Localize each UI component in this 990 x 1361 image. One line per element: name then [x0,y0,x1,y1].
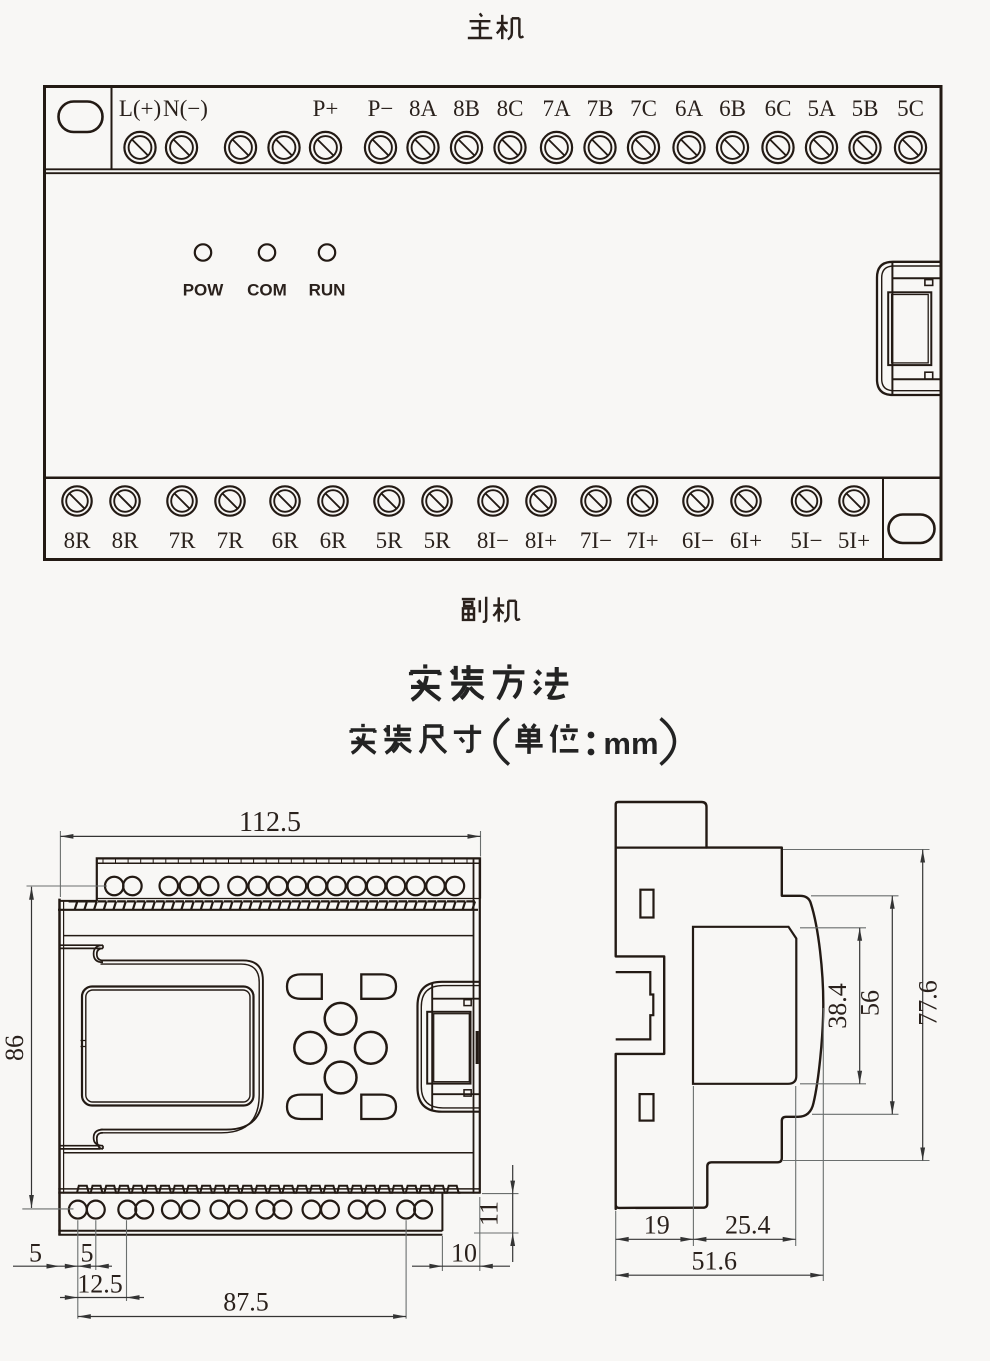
svg-text:86: 86 [0,1035,29,1061]
svg-text:19: 19 [644,1211,670,1240]
svg-text:P−: P− [368,96,394,121]
svg-text:11: 11 [475,1201,504,1226]
svg-text:5: 5 [81,1239,94,1268]
svg-text:L(+): L(+) [119,96,161,121]
svg-text:6C: 6C [765,96,792,121]
svg-text:8A: 8A [409,96,438,121]
svg-text:77.6: 77.6 [914,980,943,1026]
svg-text:7I−: 7I− [580,528,612,553]
svg-text:6A: 6A [675,96,704,121]
svg-text:8R: 8R [64,528,92,553]
svg-text:5C: 5C [897,96,924,121]
svg-text:5R: 5R [376,528,404,553]
svg-text:6I−: 6I− [682,528,714,553]
svg-text:RUN: RUN [309,281,346,300]
svg-text:51.6: 51.6 [691,1247,737,1276]
svg-text:7I+: 7I+ [626,528,658,553]
svg-text:5A: 5A [807,96,836,121]
svg-text:COM: COM [247,281,287,300]
svg-text:6R: 6R [320,528,348,553]
svg-text:7A: 7A [542,96,571,121]
svg-text:POW: POW [183,281,225,300]
svg-text:5I−: 5I− [790,528,822,553]
svg-text:5: 5 [29,1239,42,1268]
svg-text:87.5: 87.5 [223,1288,269,1317]
svg-text:5B: 5B [852,96,879,121]
svg-text:7C: 7C [630,96,657,121]
svg-text:112.5: 112.5 [239,807,301,838]
svg-text:38.4: 38.4 [823,983,852,1029]
svg-text:N(−): N(−) [163,96,208,121]
svg-text:mm: mm [603,726,658,761]
svg-text:8I−: 8I− [477,528,509,553]
svg-text:8B: 8B [453,96,480,121]
svg-text:10: 10 [451,1239,477,1268]
svg-text:8I+: 8I+ [525,528,557,553]
svg-text:5R: 5R [424,528,452,553]
svg-text:6R: 6R [272,528,300,553]
svg-text:12.5: 12.5 [77,1270,123,1299]
svg-text:5I+: 5I+ [838,528,870,553]
svg-text:25.4: 25.4 [725,1211,771,1240]
svg-text:6I+: 6I+ [730,528,762,553]
svg-text:7R: 7R [169,528,197,553]
svg-text:6B: 6B [719,96,746,121]
svg-text:8R: 8R [112,528,140,553]
svg-text:7R: 7R [217,528,245,553]
svg-text:8C: 8C [497,96,524,121]
svg-text:7B: 7B [587,96,614,121]
svg-text:P+: P+ [313,96,339,121]
